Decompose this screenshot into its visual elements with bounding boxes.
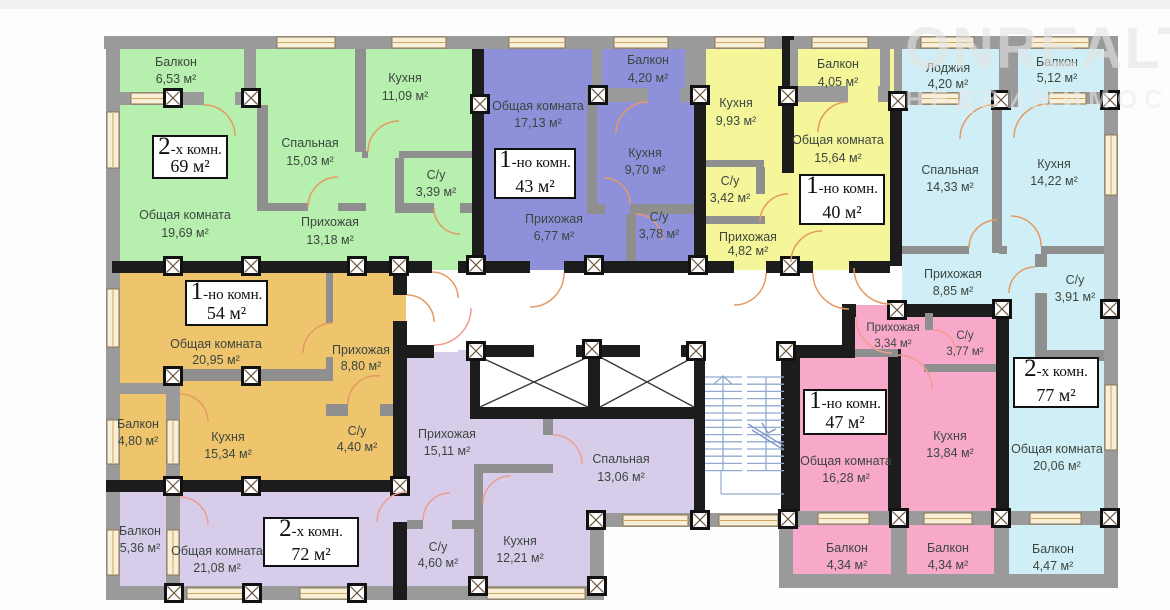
- svg-text:Кухня: Кухня: [719, 96, 752, 110]
- svg-text:Спальная: Спальная: [281, 136, 338, 150]
- svg-text:Балкон: Балкон: [1032, 542, 1074, 556]
- svg-text:4,34 м²: 4,34 м²: [827, 558, 868, 572]
- svg-text:Кухня: Кухня: [628, 146, 661, 160]
- svg-text:Прихожая: Прихожая: [418, 427, 476, 441]
- svg-text:15,11 м²: 15,11 м²: [424, 444, 471, 458]
- svg-text:С/у: С/у: [1066, 273, 1086, 287]
- svg-text:54 м²: 54 м²: [207, 303, 246, 323]
- svg-text:3,34 м²: 3,34 м²: [874, 338, 911, 350]
- svg-text:72 м²: 72 м²: [291, 544, 330, 564]
- svg-text:Балкон: Балкон: [927, 541, 969, 555]
- svg-text:Прихожая: Прихожая: [719, 230, 777, 244]
- svg-text:4,82 м²: 4,82 м²: [728, 244, 769, 258]
- svg-text:40 м²: 40 м²: [822, 202, 861, 222]
- svg-text:3,39 м²: 3,39 м²: [416, 185, 457, 199]
- svg-text:13,18 м²: 13,18 м²: [306, 233, 354, 247]
- svg-text:15,64 м²: 15,64 м²: [814, 151, 862, 165]
- svg-text:16,28 м²: 16,28 м²: [822, 471, 870, 485]
- svg-text:Кухня: Кухня: [933, 429, 966, 443]
- svg-text:Спальная: Спальная: [592, 452, 649, 466]
- svg-text:17,13 м²: 17,13 м²: [514, 116, 562, 130]
- svg-text:Балкон: Балкон: [826, 541, 868, 555]
- svg-text:4,05 м²: 4,05 м²: [818, 75, 859, 89]
- svg-text:11,09 м²: 11,09 м²: [382, 89, 429, 103]
- svg-text:3,78 м²: 3,78 м²: [639, 227, 680, 241]
- svg-text:20,06 м²: 20,06 м²: [1033, 459, 1081, 473]
- svg-text:14,33 м²: 14,33 м²: [926, 180, 974, 194]
- svg-text:4,20 м²: 4,20 м²: [628, 71, 669, 85]
- svg-text:13,06 м²: 13,06 м²: [597, 470, 645, 484]
- svg-text:С/у: С/у: [956, 330, 974, 342]
- svg-text:69 м²: 69 м²: [170, 156, 209, 176]
- svg-text:14,22 м²: 14,22 м²: [1030, 174, 1078, 188]
- svg-text:С/у: С/у: [721, 174, 741, 188]
- svg-text:21,08 м²: 21,08 м²: [193, 561, 241, 575]
- svg-text:Общая комната: Общая комната: [170, 337, 262, 351]
- svg-text:3,42 м²: 3,42 м²: [710, 191, 751, 205]
- svg-text:4,60 м²: 4,60 м²: [418, 556, 459, 570]
- svg-text:Прихожая: Прихожая: [525, 212, 583, 226]
- svg-text:Балкон: Балкон: [627, 53, 669, 67]
- svg-text:Прихожая: Прихожая: [866, 322, 919, 334]
- svg-text:Балкон: Балкон: [117, 417, 159, 431]
- svg-text:15,03 м²: 15,03 м²: [286, 154, 334, 168]
- svg-text:Прихожая: Прихожая: [332, 343, 390, 357]
- svg-text:9,93 м²: 9,93 м²: [716, 114, 757, 128]
- svg-text:Балкон: Балкон: [155, 55, 197, 69]
- svg-text:Прихожая: Прихожая: [924, 267, 982, 281]
- svg-text:Общая комната: Общая комната: [792, 133, 884, 147]
- svg-text:5,36 м²: 5,36 м²: [120, 541, 161, 555]
- svg-text:4,40 м²: 4,40 м²: [337, 440, 378, 454]
- svg-text:12,21 м²: 12,21 м²: [496, 551, 544, 565]
- svg-text:С/у: С/у: [427, 168, 447, 182]
- svg-text:Кухня: Кухня: [211, 430, 244, 444]
- svg-text:8,80 м²: 8,80 м²: [341, 359, 382, 373]
- svg-text:Прихожая: Прихожая: [301, 215, 359, 229]
- svg-text:9,70 м²: 9,70 м²: [625, 163, 666, 177]
- svg-text:8,85 м²: 8,85 м²: [933, 284, 974, 298]
- svg-text:3,91 м²: 3,91 м²: [1055, 290, 1096, 304]
- svg-text:47 м²: 47 м²: [825, 412, 864, 432]
- svg-text:С/у: С/у: [348, 424, 368, 438]
- svg-text:6,77 м²: 6,77 м²: [534, 229, 575, 243]
- svg-text:С/у: С/у: [429, 540, 449, 554]
- svg-text:Общая комната: Общая комната: [171, 544, 263, 558]
- svg-text:НЕДВИЖИМОС: НЕДВИЖИМОС: [905, 84, 1170, 114]
- svg-text:15,34 м²: 15,34 м²: [204, 447, 252, 461]
- svg-text:13,84 м²: 13,84 м²: [926, 446, 974, 460]
- svg-text:77 м²: 77 м²: [1036, 385, 1075, 405]
- svg-text:4,80 м²: 4,80 м²: [118, 434, 159, 448]
- svg-text:Кухня: Кухня: [1037, 157, 1070, 171]
- svg-text:Общая комната: Общая комната: [800, 454, 892, 468]
- svg-text:Кухня: Кухня: [503, 534, 536, 548]
- svg-text:Кухня: Кухня: [388, 71, 421, 85]
- svg-text:19,69 м²: 19,69 м²: [161, 226, 209, 240]
- svg-text:Общая комната: Общая комната: [1011, 442, 1103, 456]
- svg-text:Общая комната: Общая комната: [492, 99, 584, 113]
- svg-text:Балкон: Балкон: [817, 57, 859, 71]
- svg-text:4,47 м²: 4,47 м²: [1033, 559, 1074, 573]
- svg-text:6,53 м²: 6,53 м²: [156, 72, 197, 86]
- svg-text:43 м²: 43 м²: [515, 176, 554, 196]
- svg-text:С/у: С/у: [650, 210, 670, 224]
- svg-text:3,77 м²: 3,77 м²: [946, 346, 983, 358]
- svg-text:Общая комната: Общая комната: [139, 208, 231, 222]
- svg-text:20,95 м²: 20,95 м²: [192, 353, 240, 367]
- svg-text:ONREALT: ONREALT: [905, 16, 1170, 81]
- svg-text:Балкон: Балкон: [119, 524, 161, 538]
- svg-text:4,34 м²: 4,34 м²: [928, 558, 969, 572]
- svg-text:Спальная: Спальная: [921, 163, 978, 177]
